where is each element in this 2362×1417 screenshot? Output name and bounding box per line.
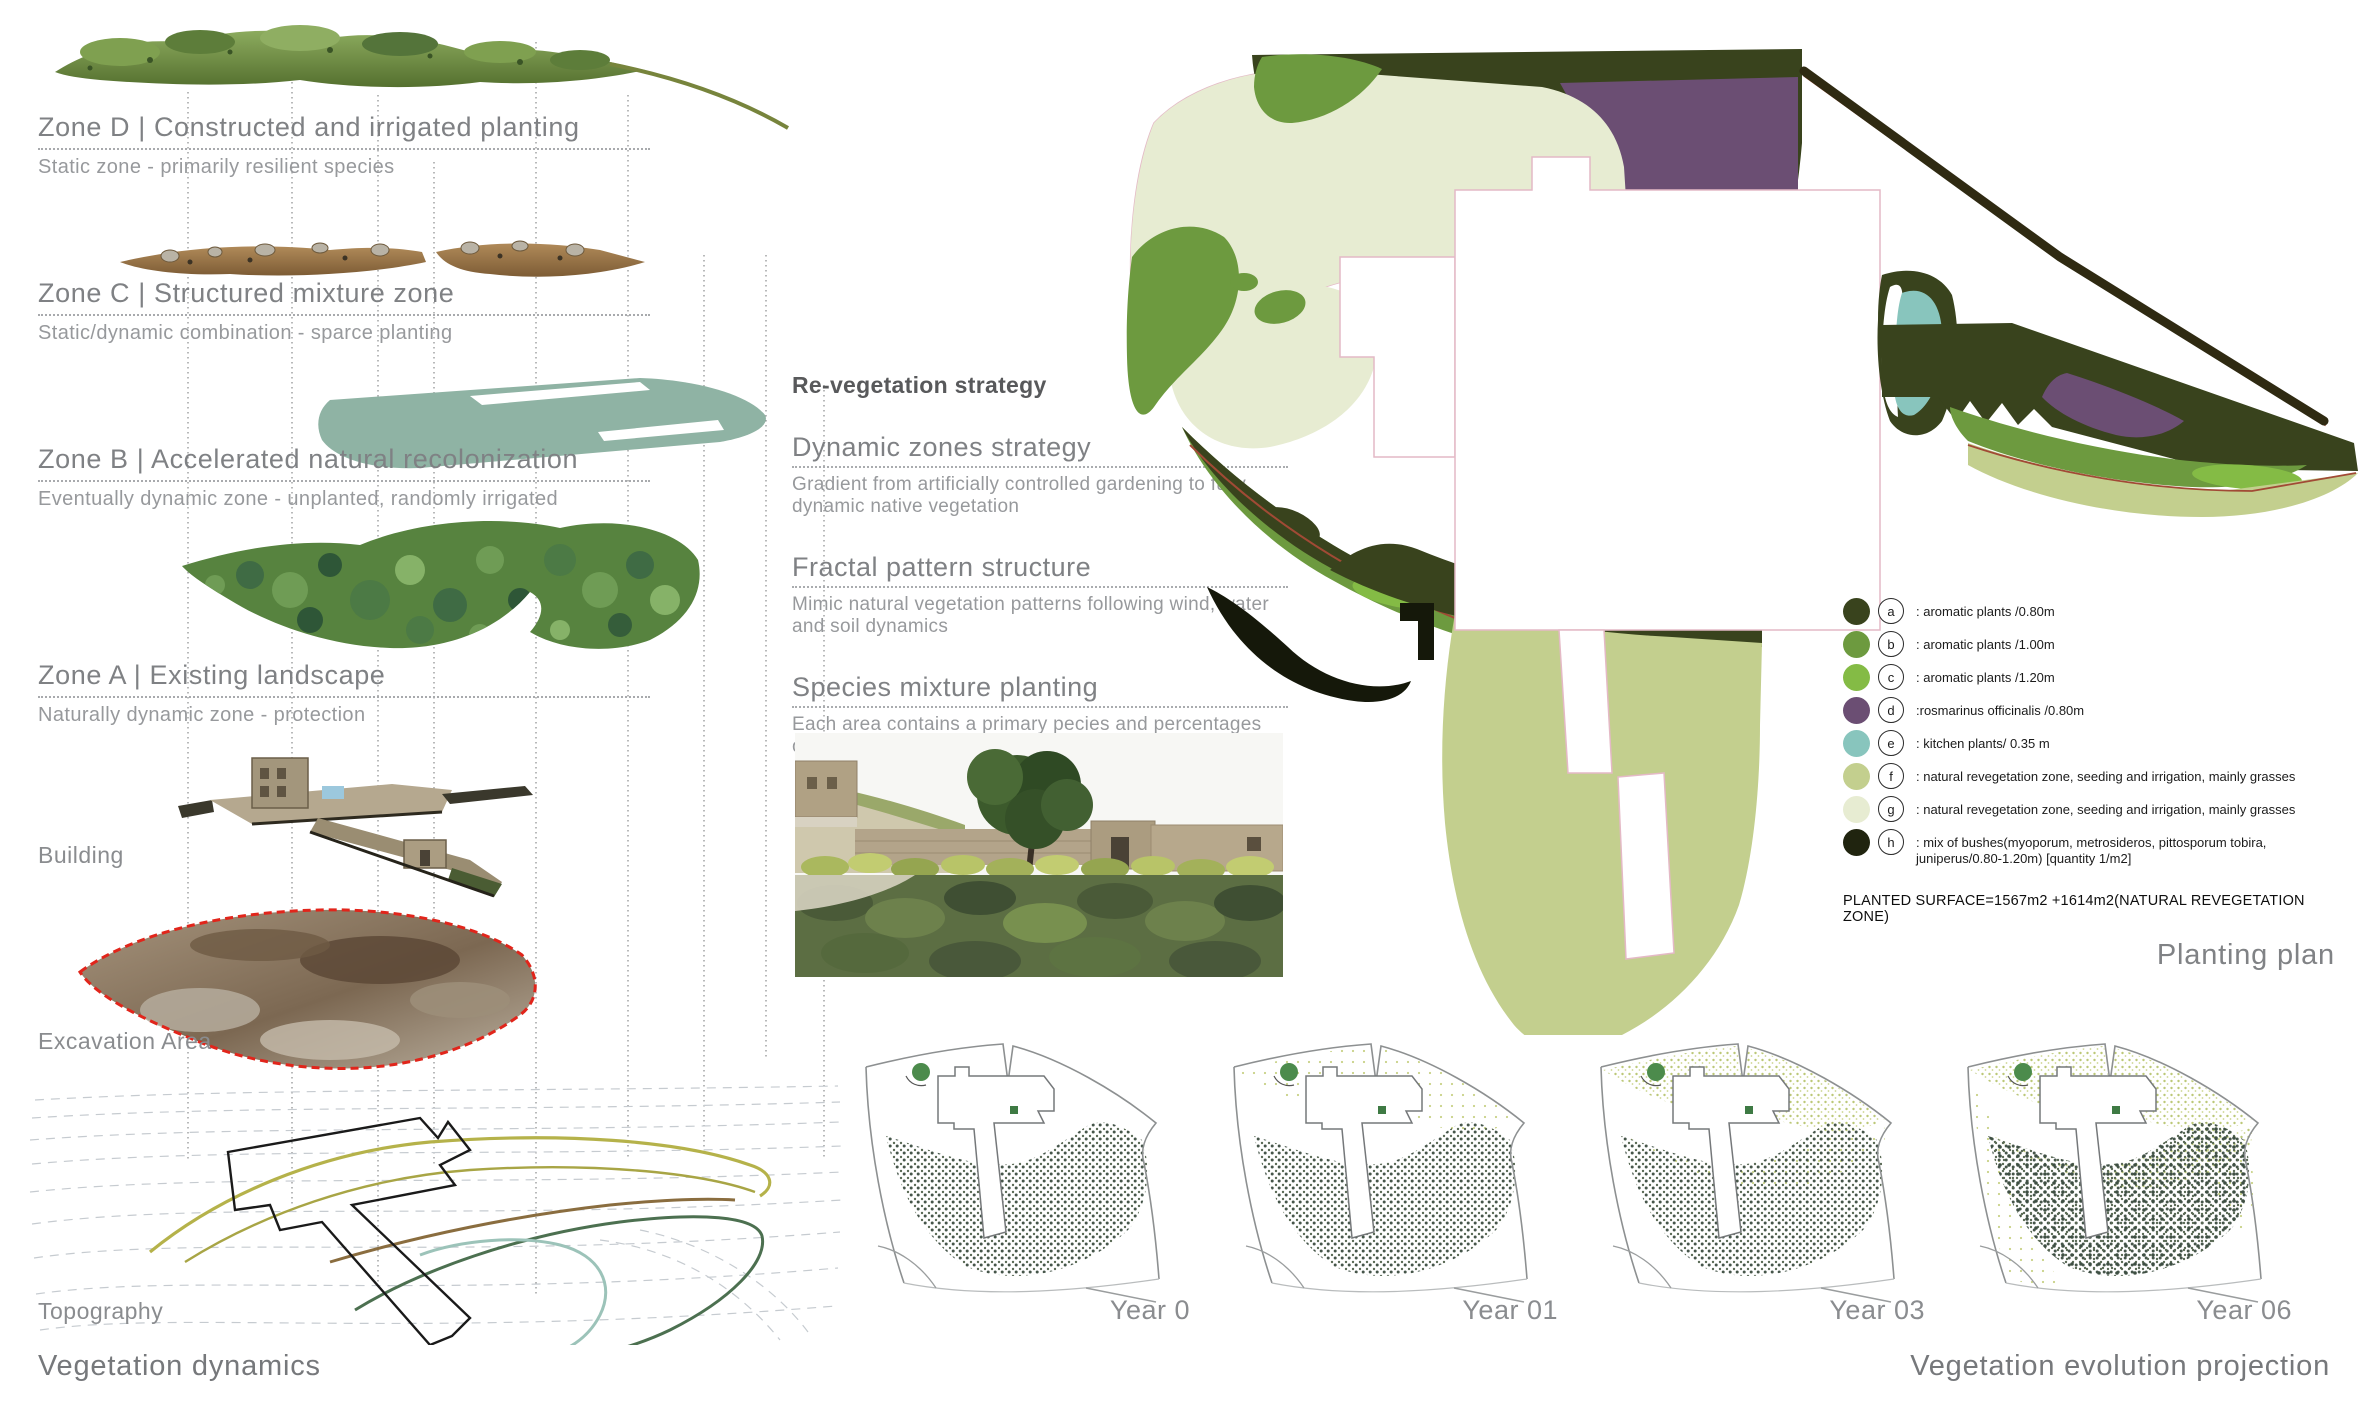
legend-row: a : aromatic plants /0.80m [1843, 598, 2335, 625]
legend-swatch-b [1843, 631, 1870, 658]
zone-d-rule [38, 148, 650, 150]
year-0-label: Year 0 [850, 1295, 1190, 1326]
legend-letter-e: e [1878, 730, 1904, 756]
legend-label: : natural revegetation zone, seeding and… [1904, 796, 2295, 818]
vegetation-evolution-title: Vegetation evolution projection [1910, 1350, 2330, 1383]
legend-letter-a: a [1878, 598, 1904, 624]
legend-row: g : natural revegetation zone, seeding a… [1843, 796, 2335, 823]
vegetation-evolution-panels [850, 1036, 2292, 1306]
legend-swatch-d [1843, 697, 1870, 724]
legend-label: : mix of bushes(myoporum, metrosideros, … [1904, 829, 2296, 868]
zone-a-title: Zone A | Existing landscape [38, 660, 650, 691]
legend-letter-f: f [1878, 763, 1904, 789]
zone-a-subtitle: Naturally dynamic zone - protection [38, 704, 650, 727]
zone-b-rule [38, 480, 650, 482]
legend-letter-c: c [1878, 664, 1904, 690]
legend-swatch-f [1843, 763, 1870, 790]
legend-label: : aromatic plants /1.00m [1904, 631, 2055, 653]
legend-swatch-e [1843, 730, 1870, 757]
legend-swatch-c [1843, 664, 1870, 691]
building-layer-graphic [178, 758, 533, 897]
zone-b-vegetation-graphic [182, 521, 700, 649]
year-0-panel [866, 1044, 1159, 1302]
legend-swatch-a [1843, 598, 1870, 625]
year-03-panel [1601, 1044, 1894, 1302]
legend-swatch-g [1843, 796, 1870, 823]
legend-letter-g: g [1878, 796, 1904, 822]
year-06-label: Year 06 [1952, 1295, 2292, 1326]
zone-d-title: Zone D | Constructed and irrigated plant… [38, 112, 650, 143]
zone-c-block: Zone C | Structured mixture zone Static/… [38, 278, 650, 345]
legend-label: : aromatic plants /0.80m [1904, 598, 2055, 620]
legend-swatch-h [1843, 829, 1870, 856]
legend-row: d :rosmarinus officinalis /0.80m [1843, 697, 2335, 724]
zone-b-subtitle: Eventually dynamic zone - unplanted, ran… [38, 488, 650, 511]
zone-c-layer-graphic [120, 241, 645, 277]
year-06-panel [1968, 1044, 2261, 1302]
legend-label: : natural revegetation zone, seeding and… [1904, 763, 2295, 785]
year-03-label: Year 03 [1585, 1295, 1925, 1326]
planting-plan-legend: a : aromatic plants /0.80m b : aromatic … [1843, 598, 2335, 972]
legend-letter-d: d [1878, 697, 1904, 723]
topography-label: Topography [38, 1298, 163, 1325]
legend-label: : aromatic plants /1.20m [1904, 664, 2055, 686]
legend-letter-h: h [1878, 829, 1904, 855]
zone-b-title: Zone B | Accelerated natural recolonizat… [38, 444, 650, 475]
zone-c-rule [38, 314, 650, 316]
legend-row: b : aromatic plants /1.00m [1843, 631, 2335, 658]
vegetation-dynamics-title: Vegetation dynamics [38, 1350, 321, 1383]
zone-d-block: Zone D | Constructed and irrigated plant… [38, 112, 650, 179]
year-01-label: Year 01 [1218, 1295, 1558, 1326]
building-label: Building [38, 842, 124, 869]
excavation-area-label: Excavation Area [38, 1028, 212, 1055]
legend-row: h : mix of bushes(myoporum, metrosideros… [1843, 829, 2335, 871]
zone-c-title: Zone C | Structured mixture zone [38, 278, 650, 309]
zone-d-subtitle: Static zone - primarily resilient specie… [38, 156, 650, 179]
planting-plan-title: Planting plan [1843, 939, 2335, 972]
year-01-panel [1234, 1044, 1527, 1302]
zone-b-block: Zone B | Accelerated natural recolonizat… [38, 444, 650, 511]
zone-a-rule [38, 696, 650, 698]
legend-row: e : kitchen plants/ 0.35 m [1843, 730, 2335, 757]
legend-label: :rosmarinus officinalis /0.80m [1904, 697, 2084, 719]
planted-surface-note: PLANTED SURFACE=1567m2 +1614m2(NATURAL R… [1843, 893, 2335, 925]
legend-row: c : aromatic plants /1.20m [1843, 664, 2335, 691]
legend-letter-b: b [1878, 631, 1904, 657]
legend-label: : kitchen plants/ 0.35 m [1904, 730, 2050, 752]
presentation-board: { "vegetation_dynamics": { "title": "Veg… [0, 0, 2362, 1417]
zone-a-block: Zone A | Existing landscape Naturally dy… [38, 660, 650, 727]
zone-c-subtitle: Static/dynamic combination - sparce plan… [38, 322, 650, 345]
legend-row: f : natural revegetation zone, seeding a… [1843, 763, 2335, 790]
